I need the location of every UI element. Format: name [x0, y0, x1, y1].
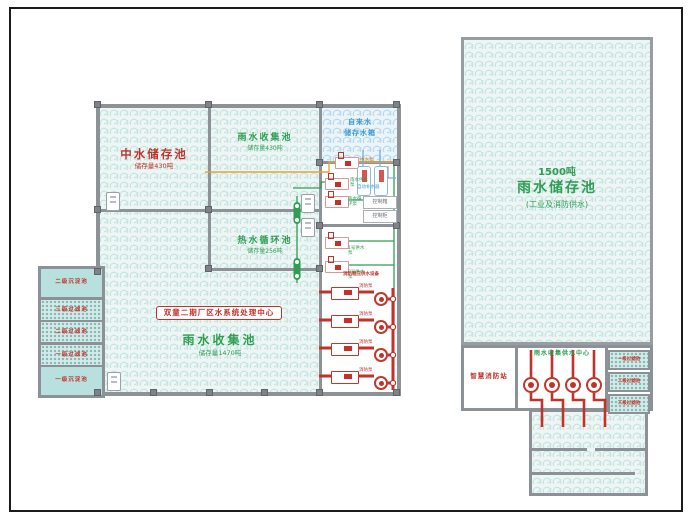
baffle-wall	[532, 448, 587, 451]
pump-unit	[325, 237, 349, 249]
column	[94, 268, 101, 275]
column	[316, 265, 323, 272]
column	[393, 159, 400, 166]
filter-label: 二级过滤池	[610, 379, 648, 384]
baffle-wall	[532, 472, 635, 475]
pump-label: 热水循环泵	[348, 198, 364, 208]
fire-pump-label: 消防泵	[359, 313, 373, 318]
tank-filter-2: 二级过滤池	[41, 322, 102, 342]
supply-center-label: 雨水收集供水中心	[518, 351, 606, 358]
fire-pump	[374, 292, 388, 306]
tank-label: 三级过滤池	[41, 307, 102, 313]
control-cabinet: 控制柜	[363, 210, 397, 223]
tank-filter-3: 三级过滤池	[41, 300, 102, 320]
big-pool-sub: (工业及消防供水)	[461, 200, 653, 209]
rain-collect-small-capacity: 储存量430吨	[211, 146, 319, 153]
pump-unit	[325, 178, 349, 190]
rain-collect-small-label: 雨水收集池	[211, 133, 319, 143]
tank-label: 二级沉淀池	[41, 279, 102, 285]
pump-label: 1号供水泵	[348, 247, 368, 257]
fire-pump	[374, 348, 388, 362]
baffle-wall	[595, 448, 645, 451]
tank-label: 二级过滤池	[41, 329, 102, 335]
column	[316, 101, 323, 108]
fire-pump-unit	[331, 287, 359, 300]
big-pool-name: 雨水储存池	[461, 180, 653, 196]
pump-unit	[325, 196, 349, 208]
filter-box-2: 二级过滤池	[608, 372, 650, 392]
side-tank-block: 二级沉淀池 三级过滤池 二级过滤池 一级过滤池 一级沉淀池	[38, 266, 105, 398]
plant-diagram: 中水储存池 储存量430吨 雨水收集池 储存量430吨 热水循环池 储存量256…	[0, 0, 692, 518]
fire-pump	[374, 320, 388, 334]
fire-pump	[374, 376, 388, 390]
wall-hotpool-bottom	[208, 268, 322, 271]
tap-tank-label-1: 自来水	[321, 118, 399, 126]
tank-sediment-2: 二级沉淀池	[41, 269, 102, 297]
wall-top	[96, 104, 401, 108]
wall-equip-horizontal	[319, 224, 401, 227]
column	[206, 389, 213, 396]
hot-cycle-pool-label: 热水循环池	[211, 236, 319, 246]
hot-cycle-pool-capacity: 储存量256吨	[211, 249, 319, 256]
wall-panel	[301, 218, 315, 237]
control-box: 控制箱	[363, 196, 397, 209]
filter-label: 三级过滤池	[610, 401, 648, 406]
big-pool-tonnage: 1500吨	[461, 167, 653, 179]
zhongshui-pool-capacity: 储存量430吨	[99, 163, 209, 170]
supply-pump	[565, 377, 581, 393]
fire-pump-unit	[331, 343, 359, 356]
main-rain-pool-capacity: 储存量1470吨	[120, 350, 320, 357]
supply-pump	[544, 377, 560, 393]
column	[205, 206, 212, 213]
filter-box-1: 一级过滤池	[608, 350, 650, 370]
tank-label: 一级沉淀池	[41, 377, 102, 383]
fire-pump-label: 消防泵	[359, 369, 373, 374]
column	[393, 389, 400, 396]
smart-fire-station-label: 智慧消防站	[461, 373, 517, 380]
filter-box-3: 三级过滤池	[608, 394, 650, 414]
column	[205, 101, 212, 108]
tank-label: 一级过滤池	[41, 352, 102, 358]
lower-baffle-pool	[529, 409, 648, 496]
pump-unit	[335, 157, 359, 169]
wall-panel	[106, 192, 120, 211]
column	[94, 206, 101, 213]
column	[316, 222, 323, 229]
column	[393, 222, 400, 229]
column	[261, 389, 268, 396]
column	[205, 265, 212, 272]
tank-sediment-1: 一级沉淀池	[41, 367, 102, 395]
fire-pump-unit	[331, 371, 359, 384]
fire-pump-unit	[331, 315, 359, 328]
tap-tank-label-2: 储存水箱	[321, 129, 399, 137]
zhongshui-pool-label: 中水储存池	[99, 148, 209, 161]
wall-panel	[301, 194, 315, 213]
supply-pump	[523, 377, 539, 393]
refill-tank	[374, 166, 388, 196]
refill-tank-label: 自动补水器	[357, 186, 381, 191]
wall-panel	[107, 372, 121, 391]
column	[150, 389, 157, 396]
supply-pump	[586, 377, 602, 393]
column	[393, 101, 400, 108]
wall-bottom	[96, 392, 401, 396]
wall-right	[397, 104, 401, 396]
column	[316, 389, 323, 396]
column	[94, 389, 101, 396]
pump-label: 中水泵	[360, 159, 380, 164]
center-badge: 双童二期厂区水系统处理中心	[156, 306, 282, 320]
main-rain-pool-label: 雨水收集池	[120, 334, 320, 348]
fire-pump-label: 消防泵	[359, 285, 373, 290]
tank-filter-1: 一级过滤池	[41, 345, 102, 365]
fire-pump-label: 消防泵	[359, 341, 373, 346]
column	[316, 159, 323, 166]
fire-header-label: 消防稳压供水设备	[330, 273, 392, 278]
filter-label: 一级过滤池	[610, 357, 648, 362]
column	[94, 101, 101, 108]
